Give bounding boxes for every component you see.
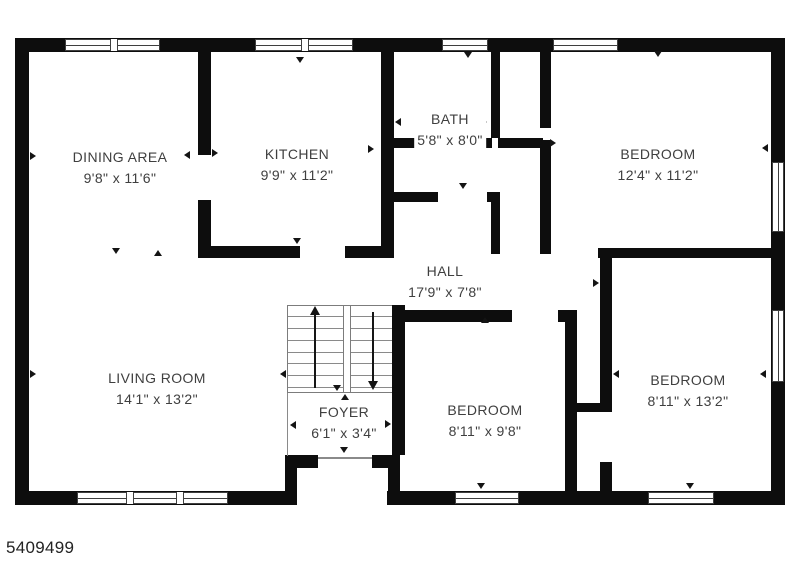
opening-marker (593, 279, 599, 287)
wall-closet-west-upper (540, 52, 551, 128)
wall-bedroom3-west-upper (600, 258, 612, 410)
stair-tread (288, 328, 392, 329)
outer-wall-bottom-right (387, 491, 785, 505)
opening-marker (654, 51, 662, 57)
window-mullion (176, 492, 184, 504)
room-dimensions: 17'9" x 7'8" (408, 282, 482, 303)
room-label-kitchen-1: KITCHEN9'9" x 11'2" (258, 144, 337, 186)
room-name: BATH (417, 109, 483, 130)
opening-marker (340, 447, 348, 453)
window-top-kitchen (255, 39, 353, 51)
opening-marker (762, 144, 768, 152)
opening-marker (341, 394, 349, 400)
wall-vestibule-stub (487, 192, 500, 202)
wall-bedroom2-north-b (558, 310, 577, 322)
opening-marker (290, 421, 296, 429)
room-dimensions: 8'11" x 9'8" (447, 421, 522, 442)
wall-dining-kitchen-upper (198, 52, 211, 155)
foyer-front-wall-right (372, 455, 400, 468)
room-label-foyer-6: FOYER6'1" x 3'4" (308, 402, 380, 444)
room-dimensions: 5'8" x 8'0" (417, 130, 483, 151)
stair-up-arrow-stem (314, 314, 316, 388)
wall-bath-south-b (498, 138, 543, 148)
floor-plan-page: DINING AREA9'8" x 11'6"KITCHEN9'9" x 11'… (0, 0, 800, 564)
room-name: DINING AREA (73, 147, 168, 168)
window-top-dining (65, 39, 160, 51)
wall-kitchen-bath (381, 52, 394, 258)
room-label-bedroom-8: BEDROOM8'11" x 13'2" (645, 370, 732, 412)
room-label-bedroom-3: BEDROOM12'4" x 11'2" (615, 144, 702, 186)
room-label-bedroom-7: BEDROOM8'11" x 9'8" (444, 400, 525, 442)
opening-marker (481, 317, 489, 323)
opening-marker (385, 420, 391, 428)
room-name: BEDROOM (447, 400, 522, 421)
room-label-dining-area-0: DINING AREA9'8" x 11'6" (70, 147, 171, 189)
room-name: FOYER (311, 402, 377, 423)
stair-divider (343, 306, 351, 392)
listing-reference-number: 5409499 (6, 538, 74, 558)
room-name: LIVING ROOM (108, 368, 206, 389)
wall-kitchen-south-a (202, 246, 300, 258)
opening-marker (613, 370, 619, 378)
opening-marker (477, 483, 485, 489)
room-dimensions: 9'8" x 11'6" (73, 168, 168, 189)
opening-marker (395, 118, 401, 126)
stair-down-arrow-stem (372, 312, 374, 382)
room-label-hall-4: HALL17'9" x 7'8" (405, 261, 485, 303)
room-dimensions: 12'4" x 11'2" (618, 165, 699, 186)
stair-tread (288, 375, 392, 376)
stair-down-arrow-head (368, 381, 378, 390)
room-name: HALL (408, 261, 482, 282)
opening-marker (30, 370, 36, 378)
room-name: KITCHEN (261, 144, 334, 165)
opening-marker (154, 250, 162, 256)
opening-marker (112, 248, 120, 254)
wall-closet-west-lower (540, 140, 551, 254)
opening-marker (293, 238, 301, 244)
window-bottom-living-room (77, 492, 228, 504)
outer-wall-left (15, 38, 29, 505)
opening-marker (368, 145, 374, 153)
window-right-bedroom3 (772, 310, 784, 382)
room-dimensions: 14'1" x 13'2" (108, 389, 206, 410)
foyer-front-wall-left (285, 455, 318, 468)
floor-plan: DINING AREA9'8" x 11'6"KITCHEN9'9" x 11'… (0, 0, 800, 564)
wall-bedroom1-south (598, 248, 785, 258)
window-mullion (301, 39, 309, 51)
wall-bath-east (491, 52, 500, 138)
window-bottom-bedroom3 (648, 492, 714, 504)
entry-door-threshold (318, 457, 372, 459)
stair-tread (288, 316, 392, 317)
opening-marker (686, 483, 694, 489)
stair-tread (288, 363, 392, 364)
room-label-bath-2: BATH5'8" x 8'0" (414, 109, 486, 151)
staircase (287, 305, 392, 393)
room-dimensions: 6'1" x 3'4" (311, 423, 377, 444)
room-name: BEDROOM (648, 370, 729, 391)
stair-up-arrow-head (310, 306, 320, 315)
stair-tread (288, 340, 392, 341)
window-top-bedroom1 (553, 39, 618, 51)
opening-marker (333, 385, 341, 391)
room-label-living-room-5: LIVING ROOM14'1" x 13'2" (105, 368, 209, 410)
opening-marker (459, 183, 467, 189)
wall-vestibule-south (387, 192, 438, 202)
wall-bedroom3-west-lower (600, 462, 612, 492)
opening-marker (550, 139, 556, 147)
opening-marker (30, 152, 36, 160)
opening-marker (464, 52, 472, 58)
stair-tread (288, 352, 392, 353)
wall-closet2-south (565, 403, 612, 412)
window-top-bath (442, 39, 488, 51)
room-dimensions: 9'9" x 11'2" (261, 165, 334, 186)
outer-wall-right (771, 38, 785, 505)
opening-marker (760, 370, 766, 378)
foyer-left-edge-line (287, 393, 288, 456)
window-mullion (126, 492, 134, 504)
room-dimensions: 8'11" x 13'2" (648, 391, 729, 412)
opening-marker (212, 149, 218, 157)
window-right-bedroom1 (772, 162, 784, 232)
wall-vestibule-east (491, 202, 500, 254)
opening-marker (184, 151, 190, 159)
room-name: BEDROOM (618, 144, 699, 165)
opening-marker (296, 57, 304, 63)
opening-marker (280, 370, 286, 378)
window-mullion (110, 39, 118, 51)
wall-bedroom2-north-a (400, 310, 512, 322)
wall-foyer-east (392, 305, 405, 455)
window-bottom-bedroom2 (455, 492, 519, 504)
